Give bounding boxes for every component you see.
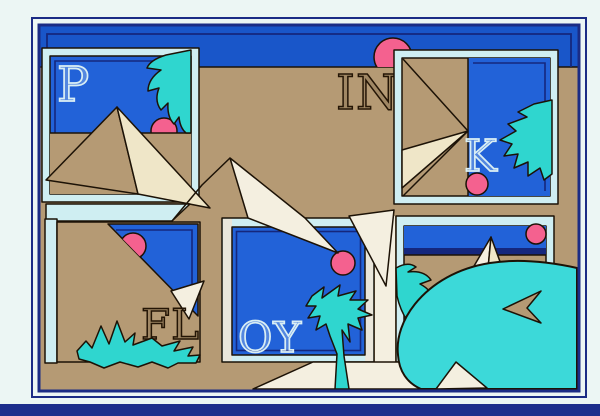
panel-d-navy-strip xyxy=(404,248,546,255)
panel-oy-sun-icon xyxy=(331,251,355,275)
panel-oy: OY xyxy=(222,218,374,362)
postcard-photo: IN P K FL xyxy=(0,0,600,416)
letter-p: P xyxy=(57,57,90,113)
letter-in: IN xyxy=(336,65,399,121)
photo-edge xyxy=(0,404,600,416)
panel-fl: FL xyxy=(45,219,204,368)
panel-fl-left-border xyxy=(45,219,57,363)
letter-k: K xyxy=(464,131,498,182)
letter-oy: OY xyxy=(238,313,302,362)
panel-oy-left-trim xyxy=(223,219,232,361)
artwork-canvas: IN P K FL xyxy=(0,0,600,416)
frame-shelf-strip xyxy=(46,204,190,221)
panel-d-sun-icon xyxy=(526,224,546,244)
panel-k: K xyxy=(394,50,558,204)
